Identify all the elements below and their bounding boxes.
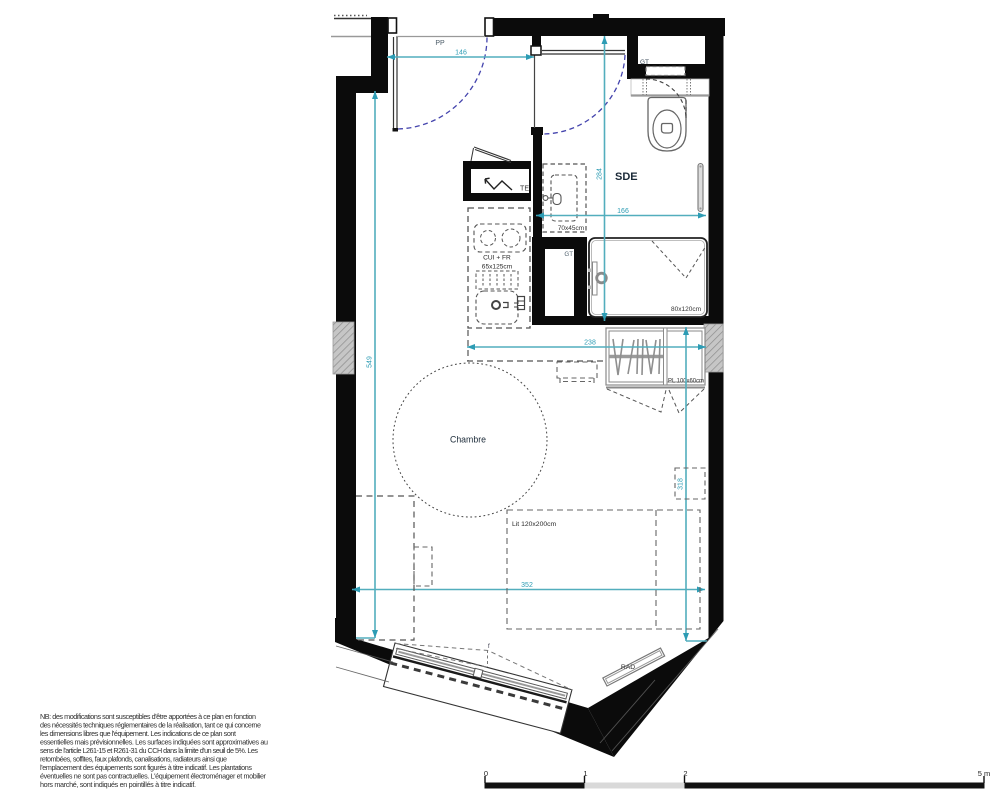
svg-text:hors marché, sont indiqués en: hors marché, sont indiqués en pointillés… bbox=[40, 780, 196, 789]
svg-text:0: 0 bbox=[484, 769, 488, 778]
svg-text:TE: TE bbox=[520, 186, 529, 193]
svg-text:1: 1 bbox=[583, 769, 587, 778]
svg-text:318: 318 bbox=[678, 478, 685, 490]
svg-text:549: 549 bbox=[367, 356, 374, 368]
svg-text:352: 352 bbox=[521, 582, 533, 589]
svg-text:80x120cm: 80x120cm bbox=[671, 306, 701, 313]
svg-text:238: 238 bbox=[584, 340, 596, 347]
svg-text:Lit 120x200cm: Lit 120x200cm bbox=[512, 521, 557, 528]
svg-text:RAD: RAD bbox=[621, 664, 635, 671]
svg-text:GT: GT bbox=[640, 59, 649, 66]
svg-text:65x125cm: 65x125cm bbox=[482, 264, 513, 271]
svg-text:CUI + FR: CUI + FR bbox=[483, 255, 511, 262]
svg-text:Chambre: Chambre bbox=[450, 435, 486, 445]
svg-text:PP: PP bbox=[435, 40, 445, 47]
svg-text:f: f bbox=[488, 644, 490, 650]
svg-text:5 m: 5 m bbox=[978, 769, 991, 778]
svg-text:GT: GT bbox=[564, 251, 573, 258]
svg-text:SDE: SDE bbox=[615, 171, 638, 183]
svg-text:146: 146 bbox=[455, 50, 467, 57]
svg-text:70x45cm: 70x45cm bbox=[558, 225, 584, 232]
svg-text:2: 2 bbox=[683, 769, 687, 778]
svg-text:284: 284 bbox=[597, 168, 604, 180]
svg-text:166: 166 bbox=[617, 208, 629, 215]
